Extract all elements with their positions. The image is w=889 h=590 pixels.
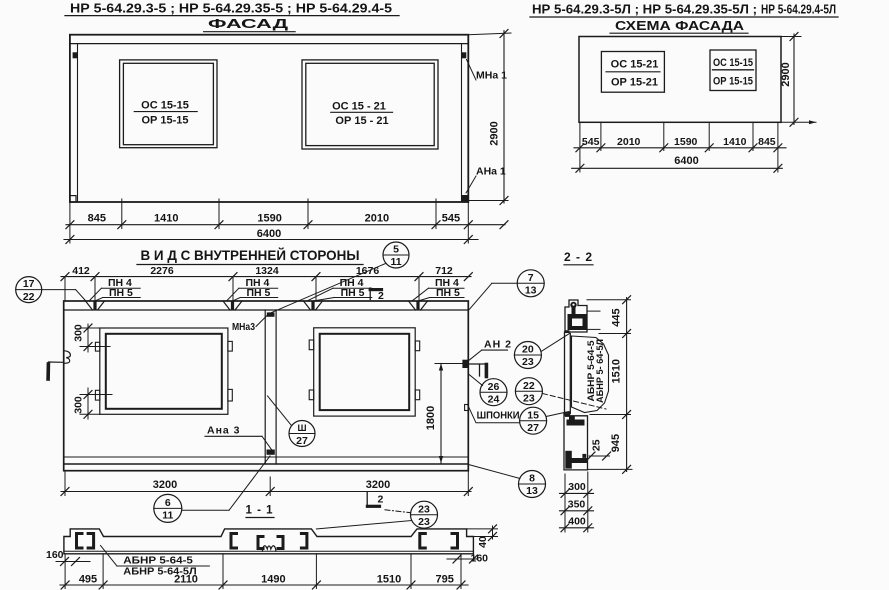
svg-text:795: 795 [436,574,454,586]
svg-text:2010: 2010 [617,136,641,148]
svg-text:1324: 1324 [255,265,279,277]
svg-text:ШПОНКИ: ШПОНКИ [477,410,520,422]
svg-text:АБНР 5- 64-5Л: АБНР 5- 64-5Л [595,339,606,403]
svg-text:6400: 6400 [674,155,698,167]
svg-text:Ана 3: Ана 3 [207,425,241,437]
svg-text:22: 22 [23,291,35,303]
svg-text:1 - 1: 1 - 1 [245,505,273,517]
svg-text:23: 23 [522,356,534,368]
svg-text:11: 11 [390,256,401,268]
svg-text:945: 945 [610,434,622,452]
svg-text:11: 11 [162,510,173,522]
svg-text:Ш: Ш [297,423,306,433]
svg-text:5: 5 [393,244,399,256]
svg-text:ФАСАД: ФАСАД [208,17,288,31]
svg-text:7: 7 [528,272,534,284]
svg-text:22: 22 [523,380,535,392]
svg-text:40: 40 [477,536,489,548]
svg-text:400: 400 [568,516,586,528]
svg-text:МНа3: МНа3 [232,321,255,333]
svg-text:3200: 3200 [153,479,177,491]
svg-text:1490: 1490 [261,574,285,586]
svg-text:23: 23 [523,392,535,404]
svg-text:АН 2: АН 2 [484,339,512,351]
svg-text:27: 27 [296,435,308,447]
svg-text:350: 350 [568,499,586,511]
svg-text:1800: 1800 [425,406,437,430]
svg-text:2276: 2276 [150,265,174,277]
svg-text:ОР 15 - 21: ОР 15 - 21 [335,115,388,127]
svg-text:160: 160 [471,553,489,565]
svg-text:1510: 1510 [377,574,401,586]
svg-text:3200: 3200 [366,479,390,491]
svg-text:712: 712 [435,265,453,277]
svg-text:15: 15 [527,409,539,421]
svg-text:2010: 2010 [365,213,389,225]
svg-text:2: 2 [378,290,384,302]
svg-text:1590: 1590 [257,213,281,225]
svg-text:2: 2 [378,494,384,506]
svg-text:24: 24 [488,393,500,405]
svg-text:1510: 1510 [611,359,623,383]
svg-text:2110: 2110 [174,574,198,586]
svg-text:20: 20 [522,344,534,356]
svg-text:545: 545 [442,213,460,225]
svg-text:300: 300 [73,324,85,342]
svg-text:23: 23 [418,516,430,528]
svg-text:СХЕМА ФАСАДА: СХЕМА ФАСАДА [615,19,744,33]
svg-text:1410: 1410 [154,213,178,225]
svg-text:АНа 1: АНа 1 [476,166,506,178]
svg-text:545: 545 [582,136,600,148]
svg-text:412: 412 [72,265,90,277]
svg-text:ОР 15-15: ОР 15-15 [713,76,753,88]
svg-text:НР 5-64.29.3-5Л ; НР 5-64.29.3: НР 5-64.29.3-5Л ; НР 5-64.29.35-5Л ; [532,3,757,17]
svg-text:МНа 1: МНа 1 [476,69,507,81]
svg-text:25: 25 [591,439,603,451]
svg-text:26: 26 [488,381,500,393]
svg-text:ОР 15-15: ОР 15-15 [141,115,188,127]
svg-text:17: 17 [23,278,35,290]
svg-text:8: 8 [529,473,535,485]
svg-text:ОС 15-15: ОС 15-15 [713,57,753,69]
svg-text:27: 27 [527,422,539,434]
svg-text:13: 13 [526,485,538,497]
svg-text:ОР 15-21: ОР 15-21 [611,77,658,89]
svg-text:В И Д С ВНУТРЕННЕЙ СТОРОНЫ: В И Д С ВНУТРЕННЕЙ СТОРОНЫ [141,248,360,263]
svg-text:845: 845 [88,213,106,225]
svg-text:1590: 1590 [674,136,698,148]
svg-text:НР 5-64.29.4-5Л: НР 5-64.29.4-5Л [761,3,836,17]
svg-text:160: 160 [46,549,64,561]
svg-text:ОС 15-15: ОС 15-15 [141,100,189,112]
svg-text:6400: 6400 [257,228,281,240]
svg-text:1410: 1410 [723,136,747,148]
svg-text:23: 23 [418,503,430,515]
svg-text:2 - 2: 2 - 2 [564,250,593,264]
svg-text:845: 845 [758,136,776,148]
svg-text:ОС 15-21: ОС 15-21 [611,59,659,71]
svg-text:300: 300 [568,481,586,493]
svg-text:495: 495 [79,574,97,586]
svg-text:2900: 2900 [780,62,792,86]
svg-text:ОС 15 - 21: ОС 15 - 21 [332,101,386,113]
svg-text:445: 445 [611,308,623,326]
svg-text:2900: 2900 [489,121,501,145]
svg-text:13: 13 [525,285,537,297]
svg-text:300: 300 [73,396,85,414]
svg-text:6: 6 [165,497,171,509]
svg-text:НР 5-64.29.3-5 ; НР 5-64.29.3: НР 5-64.29.3-5 ; НР 5-64.29.35-5 ; НР 5-… [70,2,392,16]
